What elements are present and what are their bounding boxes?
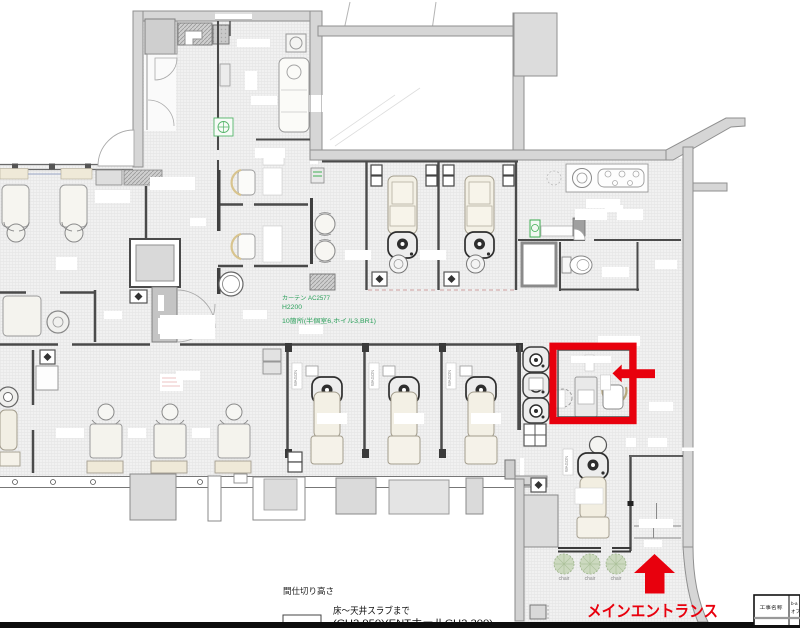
svg-text:カーテン AC2577: カーテン AC2577: [282, 295, 331, 302]
svg-text:WAGON: WAGON: [447, 370, 452, 386]
svg-text:chair: chair: [585, 576, 596, 582]
svg-text:WAGON: WAGON: [564, 456, 569, 472]
svg-text:b-a: b-a: [791, 601, 798, 606]
svg-text:WAGON: WAGON: [370, 370, 375, 386]
svg-text:工事名称: 工事名称: [760, 604, 783, 611]
svg-text:10箇所(半個室6,ホイル3,BR1): 10箇所(半個室6,ホイル3,BR1): [282, 317, 376, 325]
svg-text:H2200: H2200: [282, 305, 303, 311]
svg-text:メインエントランス: メインエントランス: [587, 604, 718, 621]
svg-text:chair: chair: [611, 576, 622, 582]
svg-text:WAGON: WAGON: [293, 370, 298, 386]
svg-text:オフ: オフ: [791, 609, 800, 614]
svg-text:床〜天井スラブまで: 床〜天井スラブまで: [333, 605, 410, 617]
svg-text:間仕切り高さ: 間仕切り高さ: [283, 586, 334, 596]
svg-text:chair: chair: [559, 576, 570, 582]
